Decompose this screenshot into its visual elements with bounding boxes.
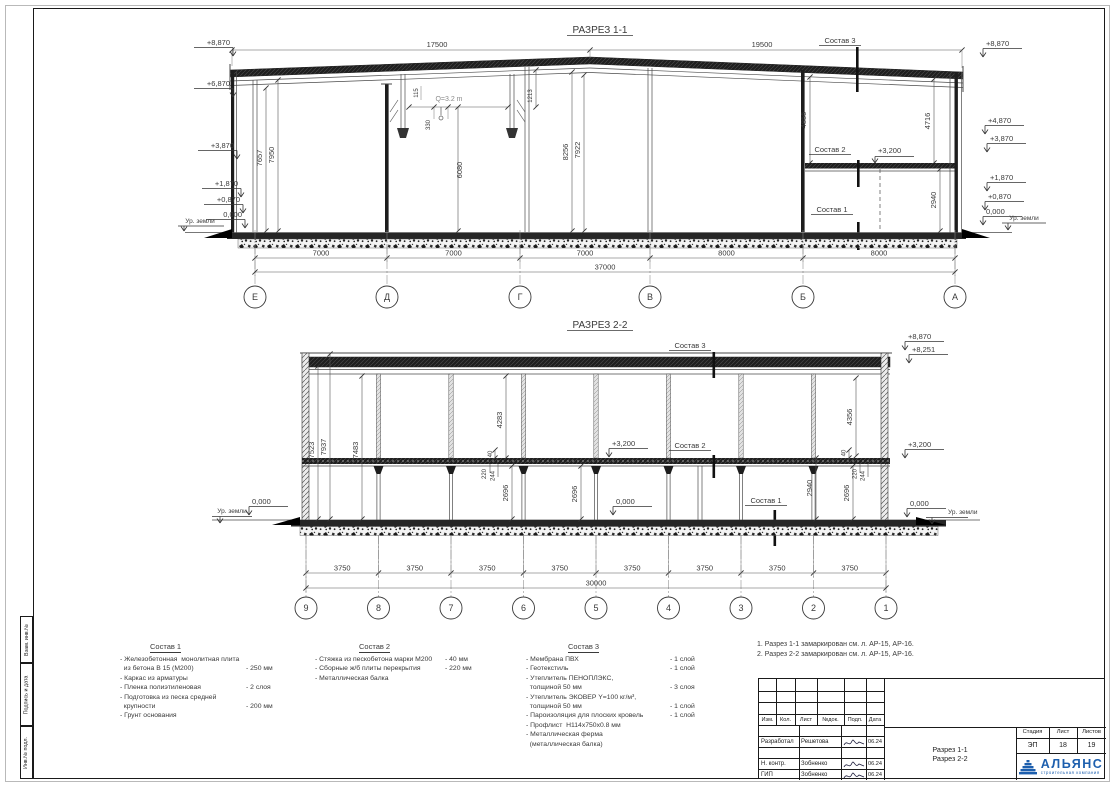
crane-capacity-label: Q=3.2 m: [435, 96, 462, 103]
doc-title-line: Разрез 2-2: [932, 754, 967, 763]
legend-item-value: - 2 слоя: [246, 684, 271, 691]
side-stamp-label: Инв.№ подл.: [24, 736, 30, 768]
elevation-mark: +8,870: [207, 38, 230, 47]
elevation-mark: 0,000: [986, 207, 1005, 216]
titleblock-header: Дата: [866, 717, 884, 723]
elevation-mark: +1,870: [215, 179, 238, 188]
legend-item: - Геотекстиль- 1 слой: [526, 665, 718, 674]
dim-label: 7950: [267, 147, 276, 164]
ground-level-label: Ур. земли: [1009, 215, 1039, 222]
dim-label: 220: [853, 468, 859, 479]
legend-item-text: - Утеплитель ЭКОВЕР Y=100 кг/м³,: [526, 694, 636, 701]
legend-item: - Сборные ж/б плиты перекрытия- 220 мм: [315, 665, 493, 674]
elevation-mark: +3,200: [612, 439, 635, 448]
axis-bubble-label: 6: [521, 603, 526, 613]
titleblock-name: Зобненко: [801, 761, 827, 767]
dim-label: 3750: [334, 564, 351, 573]
axis-bubble-label: 3: [738, 603, 743, 613]
titleblock-role: Н. контр.: [761, 761, 786, 767]
side-stamp-cell: Подпись и дата: [20, 663, 33, 726]
titleblock-header: Лист: [795, 717, 817, 723]
dim-label: 17500: [427, 40, 448, 49]
drawing-sheet: ЕДГВБА7000700070008000800037000РАЗРЕЗ 1-…: [0, 0, 1114, 786]
callout-sostav2: Состав 2: [674, 441, 705, 450]
side-stamp-label: Подпись и дата: [24, 675, 30, 714]
axis-bubble-label: 8: [376, 603, 381, 613]
elevation-mark: +1,870: [990, 173, 1013, 182]
titleblock-date: 06.24: [868, 739, 882, 745]
legend-item-value: - 250 мм: [246, 665, 273, 672]
titleblock-date: 06.24: [868, 772, 882, 778]
dim-label: 3750: [406, 564, 423, 573]
legend-item: - Грунт основания: [120, 712, 298, 721]
dim-label: 3750: [479, 564, 496, 573]
elevation-mark: +8,870: [908, 332, 931, 341]
legend-group-title: Состав 2: [359, 642, 390, 653]
titleblock-name: Зобненко: [801, 772, 827, 778]
dim-label: 3750: [624, 564, 641, 573]
legend-item-text: - Металлическая ферма: [526, 731, 603, 738]
elevation-mark: +8,251: [912, 345, 935, 354]
side-stamp-cell: Взам. инв.№: [20, 616, 33, 663]
dim-label: 7523: [307, 442, 316, 459]
elevation-mark: 0,000: [616, 497, 635, 506]
ground-level-label: Ур. земли: [185, 218, 215, 225]
legend-item: - Утеплитель ПЕНОПЛЭКС,: [526, 675, 718, 684]
dim-label: 4716: [923, 113, 932, 130]
axis-bubble-label: Г: [518, 292, 523, 302]
sheets-value: 19: [1077, 742, 1106, 749]
legend-item: толщиной 50 мм- 1 слой: [526, 703, 718, 712]
sheet-label: Лист: [1049, 729, 1077, 735]
dim-label: 7937: [319, 439, 328, 456]
legend-item-text: - Утеплитель ПЕНОПЛЭКС,: [526, 675, 613, 682]
sheet-value: 18: [1049, 742, 1077, 749]
dim-label: 7657: [255, 150, 264, 167]
legend-item-text: - Мембрана ПВХ: [526, 656, 579, 663]
elevation-mark: +0,870: [988, 192, 1011, 201]
dim-label: 220: [482, 468, 488, 479]
dim-label: 37000: [595, 263, 616, 272]
legend-item-value: - 1 слой: [670, 703, 695, 710]
dim-label: 4356: [845, 409, 854, 426]
legend-item: - Пленка полиэтиленовая- 2 слоя: [120, 684, 298, 693]
dim-label: 7000: [577, 249, 594, 258]
axis-bubble-label: Б: [800, 292, 806, 302]
legend-item-value: - 200 мм: [246, 703, 273, 710]
section2-title: РАЗРЕЗ 2-2: [573, 320, 628, 331]
axis-bubble-label: 2: [811, 603, 816, 613]
dim-label: 2696: [501, 485, 510, 502]
titleblock-name: Решетова: [801, 739, 829, 745]
section1-title: РАЗРЕЗ 1-1: [573, 25, 628, 36]
elevation-mark: +3,200: [908, 440, 931, 449]
dim-label: 3750: [769, 564, 786, 573]
legend-item-text: крупности: [120, 703, 155, 710]
elevation-mark: +3,870: [990, 134, 1013, 143]
elevation-mark: +6,870: [207, 79, 230, 88]
legend-item-text: - Пароизоляция для плоских кровель: [526, 712, 643, 719]
legend-item-text: толщиной 50 мм: [526, 703, 582, 710]
legend-item: - Металлическая балка: [315, 675, 493, 684]
elevation-mark: 0,000: [252, 497, 271, 506]
doc-title-line: Разрез 1-1: [932, 745, 967, 754]
legend-item: - Утеплитель ЭКОВЕР Y=100 кг/м³,: [526, 694, 718, 703]
callout-sostav3: Состав 3: [674, 341, 705, 350]
note-line: 2. Разрез 2-2 замаркирован см. л. АР-15,…: [757, 651, 914, 658]
dim-label: 3750: [551, 564, 568, 573]
title-block: Изм.Кол.Лист№док.Подп.ДатаРазработалРеше…: [758, 678, 1105, 779]
dim-label: 4283: [495, 412, 504, 429]
legend-item: - Пароизоляция для плоских кровель- 1 сл…: [526, 712, 718, 721]
axis-bubble-label: 4: [666, 603, 671, 613]
legend-item: толщиной 50 мм- 3 слоя: [526, 684, 718, 693]
dim-label: 244: [861, 470, 867, 481]
dim-label: 19500: [752, 40, 773, 49]
dim-label: 2696: [842, 485, 851, 502]
titleblock-header: Изм.: [759, 717, 776, 723]
logo-pyramid-icon: [1019, 758, 1037, 776]
legend-item-value: - 1 слой: [670, 712, 695, 719]
legend-item: (металлическая балка): [526, 741, 718, 750]
doc-title: Разрез 1-1Разрез 2-2: [884, 727, 1016, 780]
dim-label: 115: [414, 88, 420, 98]
dim-label: 8000: [871, 249, 888, 258]
dim-label: 2940: [805, 480, 814, 497]
stage-value: ЭП: [1016, 742, 1049, 749]
elevation-mark: 0,000: [910, 499, 929, 508]
titleblock-header: Подп.: [844, 717, 866, 723]
legend-item-value: - 220 мм: [445, 665, 472, 672]
elevation-mark: 0,000: [223, 210, 242, 219]
legend-item-text: - Профлист Н114х750х0.8 мм: [526, 722, 621, 729]
legend-item-text: толщиной 50 мм: [526, 684, 582, 691]
legend-item-text: - Сборные ж/б плиты перекрытия: [315, 665, 421, 672]
legend-item: - Подготовка из песка средней: [120, 694, 298, 703]
axis-bubble-label: Е: [252, 292, 258, 302]
legend-item-text: - Подготовка из песка средней: [120, 694, 216, 701]
elevation-mark: +4,870: [988, 116, 1011, 125]
legend-item: - Стяжка из пескобетона марки М200- 40 м…: [315, 656, 493, 665]
side-stamp-cell: Инв.№ подл.: [20, 726, 33, 779]
axis-bubble-label: 9: [303, 603, 308, 613]
elevation-mark: +8,870: [986, 39, 1009, 48]
axis-bubble-label: Д: [384, 292, 390, 302]
dim-label: 1213: [528, 89, 534, 103]
legend-item: - Железобетонная монолитная плита: [120, 656, 298, 665]
dim-label: 8000: [718, 249, 735, 258]
signature: [843, 738, 865, 748]
dim-label: 244: [491, 470, 497, 481]
ground-level-label: Ур. земли: [948, 509, 978, 516]
dim-label: 7000: [445, 249, 462, 258]
legend-item: - Профлист Н114х750х0.8 мм: [526, 722, 718, 731]
dim-label: 3750: [841, 564, 858, 573]
callout-sostav1: Состав 1: [750, 496, 781, 505]
legend-item-text: - Металлическая балка: [315, 675, 389, 682]
axis-bubble-label: 5: [593, 603, 598, 613]
legend-item-text: (металлическая балка): [526, 741, 603, 748]
signature: [843, 771, 865, 781]
side-stamp-label: Взам. инв.№: [24, 624, 30, 656]
dim-label: 2940: [929, 192, 938, 209]
callout-sostav1: Состав 1: [816, 205, 847, 214]
stage-label: Стадия: [1016, 729, 1049, 735]
legend-item-text: - Пленка полиэтиленовая: [120, 684, 201, 691]
legend-item: - Мембрана ПВХ- 1 слой: [526, 656, 718, 665]
legend-item-value: - 40 мм: [445, 656, 468, 663]
axis-bubble-label: 1: [883, 603, 888, 613]
dim-label: 3750: [696, 564, 713, 573]
legend-item: - Металлическая ферма: [526, 731, 718, 740]
dim-label: 40: [488, 450, 494, 457]
elevation-mark: +0,870: [217, 195, 240, 204]
axis-bubble-label: В: [647, 292, 653, 302]
legend-item-value: - 1 слой: [670, 656, 695, 663]
legend-item-value: - 3 слоя: [670, 684, 695, 691]
sheets-label: Листов: [1077, 729, 1106, 735]
dim-label: 4855: [799, 112, 808, 129]
dim-label: 40: [842, 449, 848, 456]
axis-bubble-label: 7: [448, 603, 453, 613]
dim-label: 6080: [455, 162, 464, 179]
legend-item: крупности- 200 мм: [120, 703, 298, 712]
signature: [843, 760, 865, 770]
titleblock-role: ГИП: [761, 772, 773, 778]
legend-item-text: - Стяжка из пескобетона марки М200: [315, 656, 432, 663]
elevation-mark: +3,870: [211, 141, 234, 150]
dim-label: 2696: [570, 486, 579, 503]
legend-item: из бетона В 15 (М200)- 250 мм: [120, 665, 298, 674]
logo-subtitle: строительная компания: [1041, 770, 1104, 775]
legend-item-value: - 1 слой: [670, 665, 695, 672]
titleblock-role: Разработал: [761, 739, 794, 745]
callout-sostav2: Состав 2: [814, 145, 845, 154]
dim-label: 7000: [313, 249, 330, 258]
axis-bubble-label: А: [952, 292, 958, 302]
legend-group-title: Состав 1: [150, 642, 181, 653]
legend-group-title: Состав 3: [568, 642, 599, 653]
legend-item-text: - Грунт основания: [120, 712, 177, 719]
dim-label: 30000: [586, 579, 607, 588]
note-line: 1. Разрез 1-1 замаркирован см. л. АР-15,…: [757, 641, 914, 648]
dim-label: 7483: [351, 442, 360, 459]
dim-label: 8256: [561, 144, 570, 161]
legend-item: - Каркас из арматуры: [120, 675, 298, 684]
legend-item-text: - Геотекстиль: [526, 665, 568, 672]
logo-name: АЛЬЯНС: [1041, 758, 1104, 770]
dim-label: 330: [426, 119, 432, 130]
titleblock-header: №док.: [817, 717, 844, 723]
legend-item-text: - Железобетонная монолитная плита: [120, 656, 239, 663]
level-mark: +3,200: [878, 146, 901, 155]
titleblock-date: 06.24: [868, 761, 882, 767]
company-logo: АЛЬЯНСстроительная компания: [1016, 753, 1106, 780]
titleblock-header: Кол.: [776, 717, 795, 723]
ground-level-label: Ур. земли: [217, 508, 247, 515]
callout-sostav3: Состав 3: [824, 36, 855, 45]
legend-item-text: из бетона В 15 (М200): [120, 665, 194, 672]
dim-label: 7922: [573, 142, 582, 159]
legend-item-text: - Каркас из арматуры: [120, 675, 188, 682]
